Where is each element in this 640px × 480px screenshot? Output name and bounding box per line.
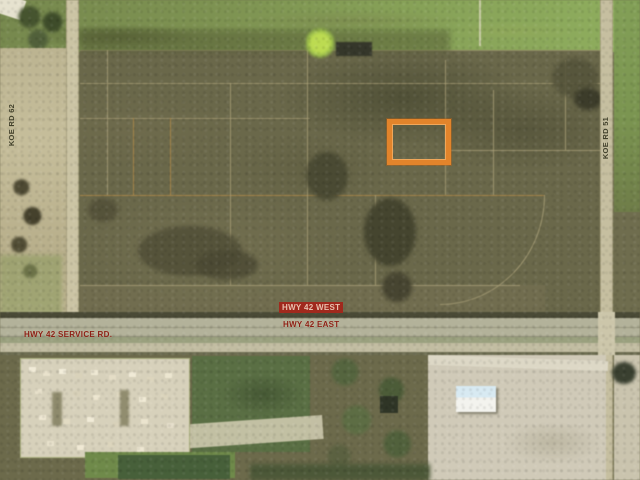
yard-shadow: [52, 392, 62, 426]
grass-east-strip: [614, 0, 640, 212]
equipment-trailers: [29, 367, 36, 372]
trees-bottom-center: [316, 348, 432, 468]
trees-by-road: [612, 362, 636, 384]
yard-shadow: [120, 390, 129, 426]
aerial-map-image: KOE RD 62 KOE RD 51 HWY 42 WEST HWY 42 E…: [0, 0, 640, 480]
road-label-right: KOE RD 51: [601, 103, 613, 173]
service-road-label: HWY 42 SERVICE RD.: [24, 330, 112, 339]
field-path: [479, 0, 481, 46]
trees-topleft: [12, 2, 70, 52]
wetland-patch: [364, 198, 416, 266]
parcel-boundary-line: [107, 50, 108, 195]
parcel-boundary-line: [493, 90, 494, 195]
field-east-strip: [614, 212, 640, 312]
bright-tree: [306, 26, 334, 64]
industrial-yard: [20, 358, 190, 458]
parcel-boundary-line: [80, 118, 310, 119]
white-building: [456, 386, 496, 412]
dark-field-bottom-left: [118, 455, 230, 479]
grass-west: [0, 255, 62, 315]
trees-bottom-edge: [250, 464, 430, 480]
road-label-left: KOE RD 62: [7, 90, 19, 160]
wetland-patch: [306, 152, 348, 200]
highway-west-label: HWY 42 WEST: [279, 302, 343, 313]
wetland-patch: [196, 250, 258, 280]
terrain-layer: [0, 0, 640, 480]
parcel-boundary-line: [133, 118, 134, 195]
parcel-boundary-line: [445, 150, 600, 151]
road-intersection-right: [598, 312, 615, 355]
field-shading: [80, 30, 450, 52]
paved-lot: [428, 355, 606, 480]
farm-structure: [336, 42, 372, 56]
road-left-vertical: [66, 0, 79, 352]
highway-east-label: HWY 42 EAST: [283, 320, 340, 329]
wetland-patch: [88, 198, 118, 222]
farm-structure: [574, 88, 602, 110]
subject-parcel-highlight: [387, 119, 451, 165]
wetland-patch: [382, 272, 412, 302]
parcel-boundary-line: [80, 83, 600, 84]
parcel-boundary-line: [170, 118, 171, 195]
small-building: [380, 396, 398, 413]
